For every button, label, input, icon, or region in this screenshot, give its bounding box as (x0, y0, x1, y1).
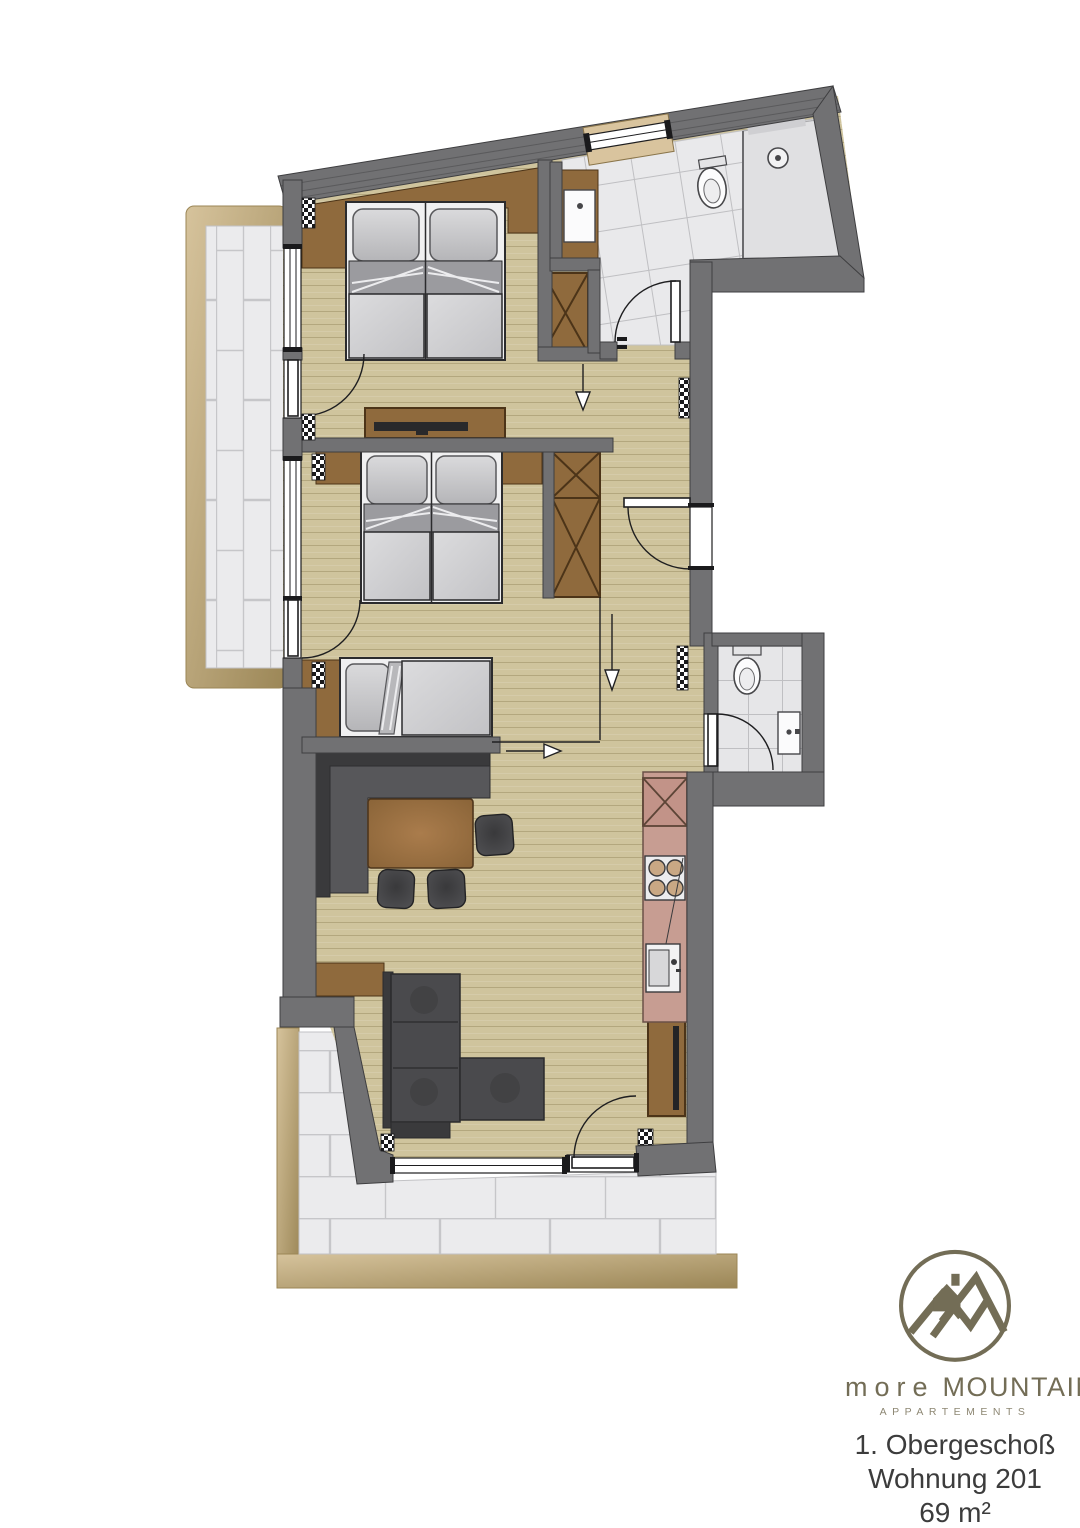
double-bed-1 (346, 202, 505, 360)
wall-niche-right (588, 270, 600, 353)
brand-block: moreMOUNTAIN APPARTEMENTS 1. Obergeschoß… (845, 1240, 1065, 1528)
brand-word-more: more (845, 1372, 935, 1402)
chair-bottom-2 (427, 869, 466, 909)
kitchen (643, 772, 687, 1022)
insulation-mark (312, 662, 325, 688)
more-mountain-logo-icon (891, 1240, 1019, 1368)
wall-left-4 (283, 658, 302, 690)
washbasin-wc (778, 712, 800, 754)
caption-unit: Wohnung 201 (845, 1462, 1065, 1496)
caption-area: 69 m² (845, 1496, 1065, 1528)
insulation-mark (638, 1129, 653, 1145)
tall-cabinet (643, 778, 687, 826)
vanity-washbasin (560, 170, 598, 258)
kitchen-sink (646, 944, 681, 992)
plan-caption: 1. Obergeschoß Wohnung 201 69 m² (845, 1428, 1065, 1528)
window-bedroom2 (283, 456, 302, 601)
wall-bed2-bottom (302, 737, 500, 753)
toilet-wc (733, 646, 761, 694)
wall-bedrooms-divider (302, 438, 613, 452)
insulation-mark (312, 454, 325, 480)
caption-floor: 1. Obergeschoß (845, 1428, 1065, 1462)
wall-step-out (280, 997, 354, 1027)
wardrobe-large (552, 452, 600, 597)
double-bed-2 (361, 450, 502, 603)
insulation-mark (302, 414, 315, 440)
wall-wc-top (712, 633, 804, 646)
chair-right (475, 814, 515, 856)
insulation-mark (679, 378, 689, 418)
tv-icon (673, 1026, 679, 1110)
wall-bathdoor-right (675, 342, 690, 359)
nightstand-right (502, 452, 542, 484)
insulation-mark (677, 646, 688, 690)
window-living (390, 1157, 567, 1174)
wall-kitchen-right (687, 772, 713, 1158)
chair-bottom-1 (377, 869, 415, 909)
window-bedroom1 (283, 244, 302, 352)
wall-bath-bottom (690, 256, 864, 292)
brand-name: moreMOUNTAIN (845, 1372, 1065, 1403)
wall-left-3 (283, 418, 302, 460)
brand-subtitle: APPARTEMENTS (845, 1406, 1065, 1418)
floor-plan-page: moreMOUNTAIN APPARTEMENTS 1. Obergeschoß… (0, 0, 1080, 1528)
wall-corridor-upper (690, 262, 712, 507)
wall-bottom-right (636, 1142, 716, 1176)
wall-bathdoor-left (600, 342, 617, 359)
wall-left-1 (283, 180, 302, 248)
single-bed (340, 658, 492, 737)
insulation-mark (302, 198, 315, 228)
sideboard-left (316, 963, 384, 996)
balcony-left (186, 206, 287, 688)
wall-bed2-right (543, 452, 554, 598)
wall-vanity-bottom (550, 258, 600, 271)
dining-table (368, 799, 473, 868)
brand-word-mountain: MOUNTAIN (943, 1372, 1080, 1402)
wall-bath-left (550, 162, 562, 260)
tv-board (648, 1020, 685, 1116)
insulation-mark (381, 1134, 394, 1151)
sideboard-tv-1 (365, 408, 505, 438)
wall-left-living (283, 688, 316, 1000)
